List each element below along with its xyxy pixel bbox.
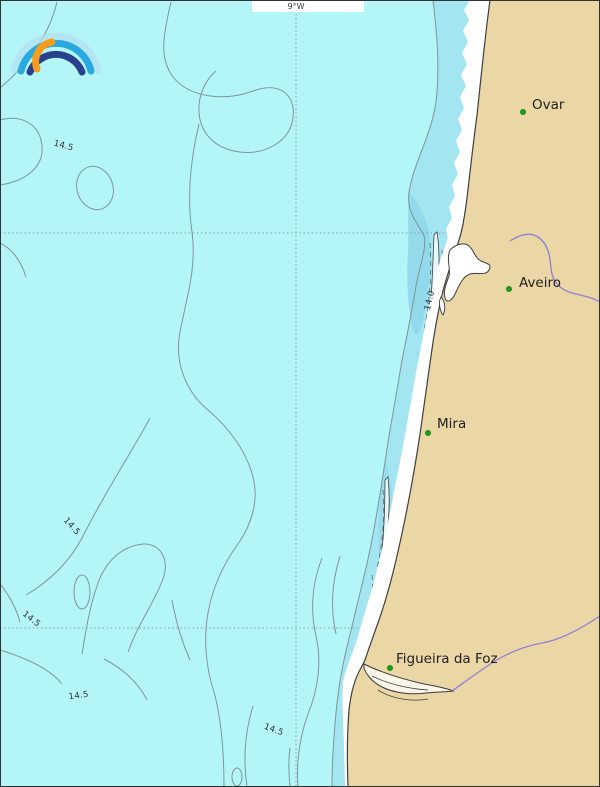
city-marker-figueira-da-foz[interactable] [387,665,392,670]
graticule-label-group: 9°W [252,0,364,12]
longitude-label: 9°W [288,2,305,11]
map-viewport: 14.5 14.0 14.5 14.5 14.5 14.5 Ovar Aveir… [0,0,600,787]
city-marker-mira[interactable] [425,430,430,435]
city-label-ovar: Ovar [532,97,565,113]
city-label-mira: Mira [437,416,466,432]
map-canvas[interactable]: 14.5 14.0 14.5 14.5 14.5 14.5 Ovar Aveir… [0,0,600,787]
city-label-aveiro: Aveiro [519,275,561,291]
city-marker-aveiro[interactable] [506,286,511,291]
city-label-figueira-da-foz: Figueira da Foz [396,651,498,667]
city-marker-ovar[interactable] [520,109,525,114]
graticule-label-backing [252,0,364,12]
